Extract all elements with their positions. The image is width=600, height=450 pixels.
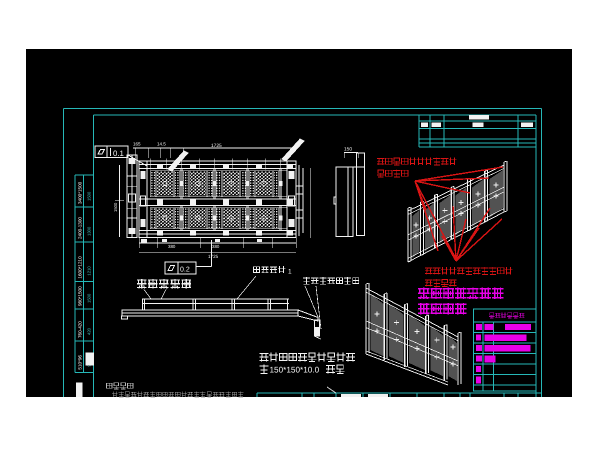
svg-text:380: 380 [212, 244, 220, 249]
svg-text:1: 1 [288, 269, 292, 276]
svg-text:14.5: 14.5 [157, 142, 166, 147]
svg-text:980*1500: 980*1500 [78, 286, 83, 306]
svg-text:1500: 1500 [87, 293, 92, 303]
svg-text:0.2: 0.2 [180, 267, 190, 274]
svg-text:150: 150 [344, 147, 352, 153]
svg-text:380: 380 [168, 244, 176, 249]
svg-text:1725: 1725 [208, 254, 219, 259]
svg-text:420: 420 [87, 327, 92, 335]
svg-text:150*150*10.0: 150*150*10.0 [270, 366, 320, 375]
svg-text:165: 165 [133, 142, 141, 147]
svg-text:2400-1300: 2400-1300 [78, 217, 83, 239]
svg-text:1500: 1500 [87, 191, 92, 201]
svg-text:3400*1500: 3400*1500 [78, 181, 83, 204]
svg-text:760-420: 760-420 [78, 321, 83, 338]
svg-text:1500: 1500 [113, 202, 118, 212]
svg-text:510*96: 510*96 [78, 355, 83, 370]
svg-text:1210: 1210 [87, 266, 92, 276]
svg-text:0.1: 0.1 [113, 149, 124, 158]
svg-text:1300: 1300 [87, 226, 92, 236]
svg-text:1600*1210: 1600*1210 [78, 256, 83, 279]
